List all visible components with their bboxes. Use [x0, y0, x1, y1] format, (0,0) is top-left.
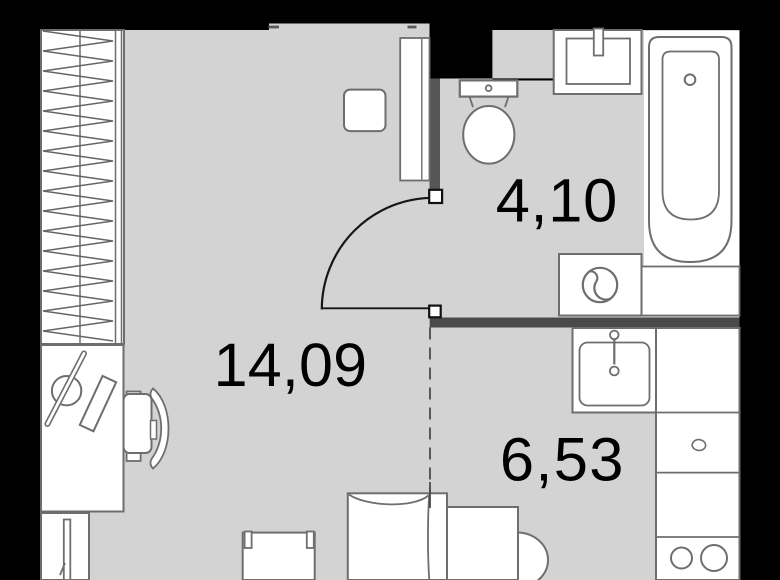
svg-text:6,53: 6,53	[500, 425, 625, 494]
svg-text:14,09: 14,09	[214, 331, 368, 399]
svg-text:4,10: 4,10	[496, 167, 618, 236]
